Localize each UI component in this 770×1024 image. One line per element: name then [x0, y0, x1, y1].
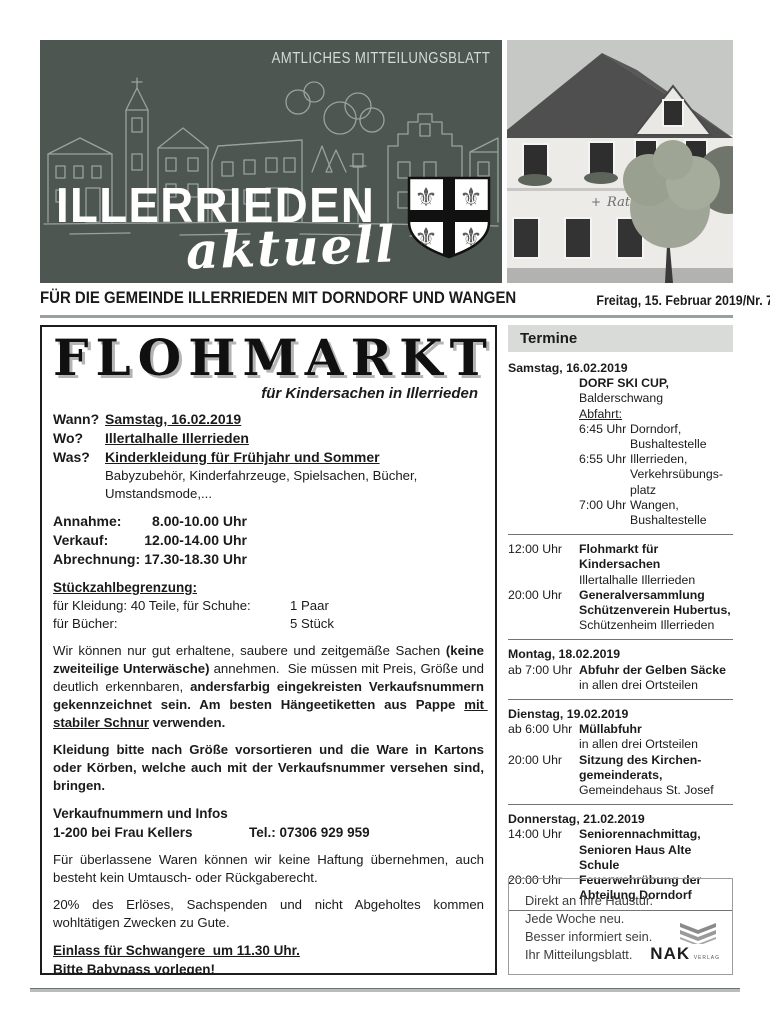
svg-text:⚜: ⚜: [459, 183, 482, 213]
termine-date: Dienstag, 19.02.2019: [508, 707, 733, 722]
notice-pregnant: Einlass für Schwangere um 11.30 Uhr.: [53, 941, 484, 960]
admission-notices: Einlass für Schwangere um 11.30 Uhr. Bit…: [53, 941, 484, 975]
departure-row: 6:45 UhrDorndorf,: [508, 422, 733, 437]
termine-entry: Abfahrt:: [508, 407, 733, 422]
masthead-script-title: aktuell: [185, 214, 397, 280]
limit-row: für Bücher:5 Stück: [53, 615, 484, 633]
termine-entry: DORF SKI CUP,: [508, 376, 733, 391]
termine-entry: in allen drei Ortsteilen: [508, 737, 733, 752]
termine-entry: gemeinderats,: [508, 768, 733, 783]
nak-brand-suffix: VERLAG: [694, 955, 720, 961]
fact-row: Wann?Samstag, 16.02.2019: [53, 410, 484, 429]
flohmarkt-facts: Wann?Samstag, 16.02.2019 Wo?Illertalhall…: [53, 410, 484, 503]
charity-paragraph: 20% des Erlöses, Sachspenden und nicht A…: [53, 896, 484, 932]
flohmarkt-subtitle: für Kindersachen in Illerrieden: [53, 385, 484, 403]
divider: [508, 534, 733, 535]
termine-entry: ab 6:00 UhrMüllabfuhr: [508, 722, 733, 737]
termine-entry: 12:00 UhrFlohmarkt für Kindersachen: [508, 542, 733, 572]
schedule: Annahme:8.00-10.00 Uhr Verkauf:12.00-14.…: [53, 512, 484, 569]
termine-entry: Illertalhalle Illerrieden: [508, 573, 733, 588]
svg-text:⚜: ⚜: [459, 223, 482, 253]
bottom-rule: [30, 988, 740, 992]
schedule-row: Verkauf:12.00-14.00 Uhr: [53, 531, 484, 550]
termine-date: Donnerstag, 21.02.2019: [508, 812, 733, 827]
divider: [508, 639, 733, 640]
schedule-row: Abrechnung:17.30-18.30 Uhr: [53, 550, 484, 569]
flohmarkt-title: FLOHMARKT: [53, 331, 484, 385]
departure-row: Bushaltestelle: [508, 513, 733, 528]
termine-panel: Termine Samstag, 16.02.2019 DORF SKI CUP…: [508, 325, 733, 918]
sorting-paragraph: Kleidung bitte nach Größe vorsortieren u…: [53, 741, 484, 795]
issue-date: Freitag, 15. Februar 2019/Nr. 7: [597, 293, 770, 308]
masthead-banner: AMTLICHES MITTEILUNGSBLATT ILLERRIEDEN a…: [40, 40, 502, 283]
coat-of-arms: ⚜⚜ ⚜⚜: [405, 176, 493, 260]
termine-entry: Schützenheim Illerrieden: [508, 618, 733, 633]
divider: [508, 804, 733, 805]
termine-entry: 20:00 UhrGeneralversammlung: [508, 588, 733, 603]
nak-verlag-logo: NAK VERLAG: [650, 922, 720, 967]
was-detail: Babyzubehör, Kinderfahrzeuge, Spielsache…: [53, 467, 484, 503]
notice-babypass: Bitte Babypass vorlegen!: [53, 960, 484, 975]
svg-text:+: +: [591, 195, 601, 209]
fact-row: Wo?Illertalhalle Illerrieden: [53, 429, 484, 448]
chevron-logo-icon: [678, 922, 718, 944]
departure-row: 6:55 UhrIllerrieden,: [508, 452, 733, 467]
publisher-promo-box: Direkt an Ihre Haustür. Jede Woche neu. …: [508, 878, 733, 975]
termine-heading: Termine: [508, 325, 733, 352]
liability-paragraph: Für überlassene Waren können wir keine H…: [53, 851, 484, 887]
termine-entry: ab 7:00 UhrAbfuhr der Gelben Säcke: [508, 663, 733, 678]
phone-number: Tel.: 07306 929 959: [249, 823, 370, 842]
tagline: FÜR DIE GEMEINDE ILLERRIEDEN MIT DORNDOR…: [40, 288, 516, 308]
limits-heading: Stückzahlbegrenzung:: [53, 578, 484, 597]
limit-row: für Kleidung: 40 Teile, für Schuhe:1 Paa…: [53, 597, 484, 615]
termine-entry: 14:00 UhrSeniorennachmittag,: [508, 827, 733, 842]
promo-line: Direkt an Ihre Haustür.: [525, 892, 732, 910]
termine-entry: Schützenverein Hubertus,: [508, 603, 733, 618]
termine-entry: 20:00 UhrSitzung des Kirchen-: [508, 753, 733, 768]
termine-entry: Balderschwang: [508, 391, 733, 406]
schedule-row: Annahme:8.00-10.00 Uhr: [53, 512, 484, 531]
departure-row: 7:00 UhrWangen,: [508, 498, 733, 513]
limits: Stückzahlbegrenzung: für Kleidung: 40 Te…: [53, 578, 484, 633]
svg-text:⚜: ⚜: [414, 183, 437, 213]
contact-heading: Verkaufnummern und Infos: [53, 804, 484, 823]
departure-row: platz: [508, 483, 733, 498]
flohmarkt-article: FLOHMARKT für Kindersachen in Illerriede…: [40, 325, 497, 975]
nak-brand: NAK: [650, 944, 690, 963]
termine-entry: in allen drei Ortsteilen: [508, 678, 733, 693]
newsletter-page: AMTLICHES MITTEILUNGSBLATT ILLERRIEDEN a…: [0, 0, 770, 1024]
termine-entry: Gemeindehaus St. Josef: [508, 783, 733, 798]
fact-row: Was?Kinderkleidung für Frühjahr und Somm…: [53, 448, 484, 467]
termine-date: Samstag, 16.02.2019: [508, 361, 733, 376]
contact-info: Verkaufnummern und Infos 1-200 bei Frau …: [53, 804, 484, 842]
svg-text:⚜: ⚜: [414, 223, 437, 253]
subheader: FÜR DIE GEMEINDE ILLERRIEDEN MIT DORNDOR…: [40, 288, 733, 318]
departure-row: Verkehrsübungs-: [508, 467, 733, 482]
conditions-paragraph: Wir können nur gut erhaltene, saubere un…: [53, 642, 484, 732]
termine-list: Samstag, 16.02.2019 DORF SKI CUP, Balder…: [508, 352, 733, 911]
rathaus-photo: Rathaus +: [507, 40, 733, 283]
termine-date: Montag, 18.02.2019: [508, 647, 733, 662]
departure-row: Bushaltestelle: [508, 437, 733, 452]
divider: [508, 699, 733, 700]
termine-entry: Senioren Haus Alte Schule: [508, 843, 733, 873]
contact-row: 1-200 bei Frau KellersTel.: 07306 929 95…: [53, 823, 484, 842]
kicker-text: AMTLICHES MITTEILUNGSBLATT: [271, 50, 490, 68]
